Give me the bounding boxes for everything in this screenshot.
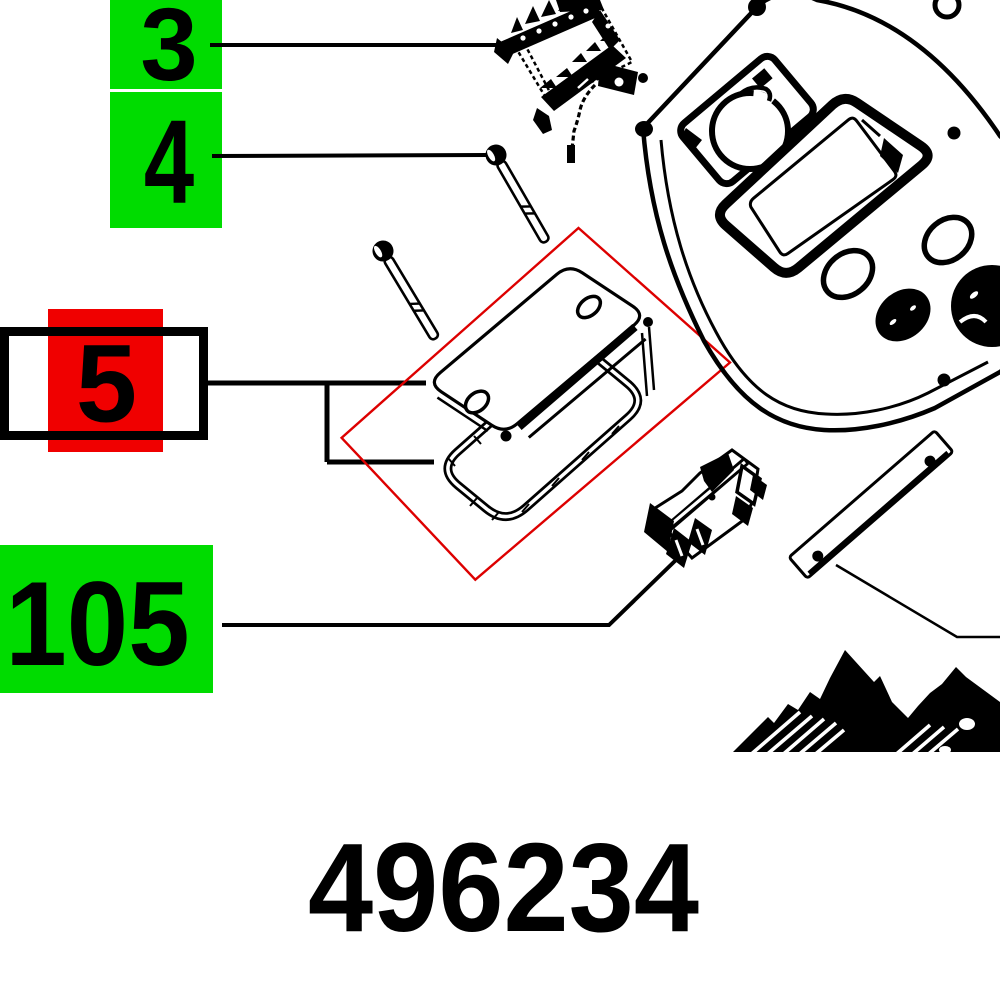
svg-text:105: 105 [5,558,189,691]
svg-text:3: 3 [140,0,197,102]
svg-text:5: 5 [76,323,137,446]
svg-text:4: 4 [144,96,194,229]
svg-text:496234: 496234 [308,817,699,958]
